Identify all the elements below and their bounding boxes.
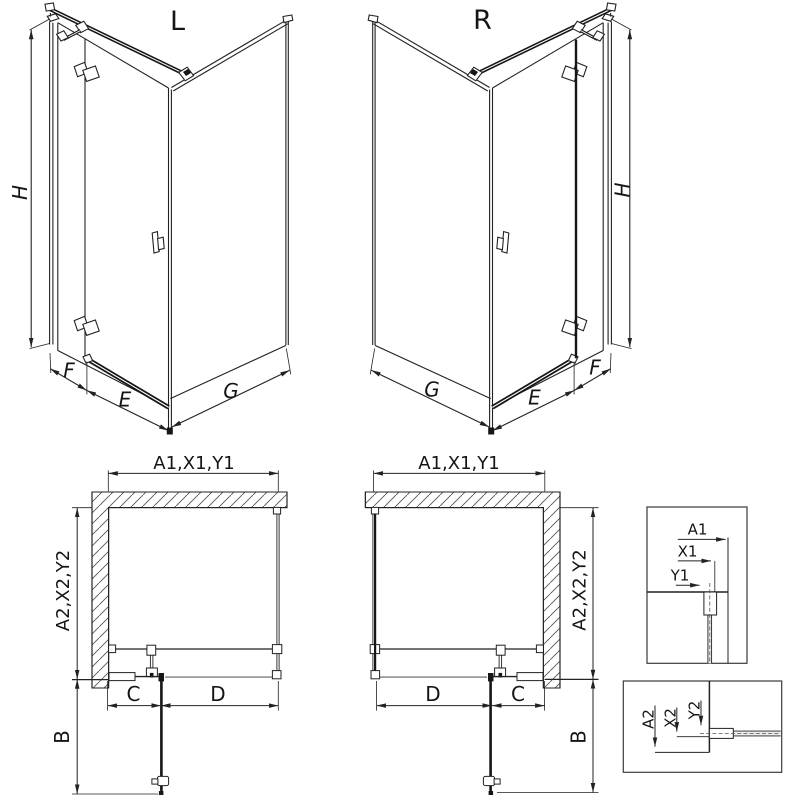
dim-label-fixed-right: F	[589, 355, 601, 379]
wall-outline	[92, 492, 287, 688]
dim-label-fixed-left: F	[63, 358, 75, 382]
perspective-view-right: R H F E G	[368, 3, 634, 435]
perspective-view-left: L H F E G	[8, 3, 293, 435]
wall-outline	[365, 492, 560, 688]
detail-label-y1: Y1	[670, 567, 690, 585]
technical-drawing-page: L H F E G R H F E G A1,X1,Y1 A2	[0, 0, 800, 800]
enclosure-plan-right	[370, 507, 543, 795]
dim-label-c-left-plan: C	[127, 682, 141, 706]
dim-label-height-left: H	[8, 185, 32, 200]
detail-label-y2: Y2	[686, 701, 704, 721]
dim-label-c-right-plan: C	[511, 682, 525, 706]
drawing-svg: L H F E G R H F E G A1,X1,Y1 A2	[0, 0, 800, 800]
variant-label-right: R	[473, 5, 492, 36]
enclosure-plan-left	[109, 507, 282, 795]
detail-label-x1: X1	[678, 543, 698, 561]
plan-view-right: A1,X1,Y1 A2,X2,Y2 D C B	[365, 453, 598, 795]
variant-label-left: L	[170, 6, 185, 37]
plan-right-dimensions	[374, 470, 599, 792]
dim-label-height-right: H	[611, 182, 635, 197]
dim-label-width-top-right-plan: A1,X1,Y1	[418, 453, 499, 474]
dim-label-width-top-left-plan: A1,X1,Y1	[153, 453, 234, 474]
dim-label-side-left: G	[223, 379, 239, 403]
wall-hatch	[365, 492, 560, 688]
detail-label-a2: A2	[640, 709, 658, 729]
plan-view-left: A1,X1,Y1 A2,X2,Y2 C D B	[50, 453, 287, 795]
dim-label-b-left-plan: B	[50, 730, 74, 744]
dim-label-b-right-plan: B	[567, 730, 591, 744]
dim-label-d-left-plan: D	[210, 682, 225, 706]
detail-label-a1: A1	[688, 521, 708, 539]
dim-label-depth-right-plan: A2,X2,Y2	[570, 549, 591, 630]
dim-label-d-right-plan: D	[425, 682, 440, 706]
detail-label-x2: X2	[662, 708, 680, 728]
dim-label-side-right: G	[424, 378, 440, 402]
dim-label-door-right: E	[528, 386, 541, 410]
dim-label-depth-left-plan: A2,X2,Y2	[53, 550, 74, 631]
detail-view-top: A1 X1 Y1	[647, 507, 747, 663]
dim-label-door-left: E	[119, 388, 132, 412]
detail-view-bottom: A2 X2 Y2	[623, 681, 781, 772]
wall-hatch	[92, 492, 287, 688]
